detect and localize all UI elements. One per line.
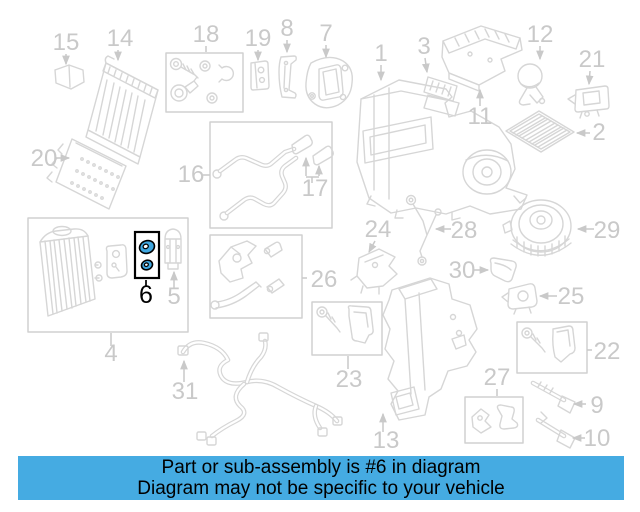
part-callout-23: 23	[336, 356, 363, 393]
part-callout-18: 18	[193, 21, 220, 52]
part-2-cabin-filter-art	[506, 111, 574, 152]
part-callout-29: 29	[578, 217, 620, 244]
part-25-actuator-art	[502, 284, 537, 314]
part-callout-11: 11	[468, 90, 493, 130]
part-number-22: 22	[594, 338, 621, 365]
part-12-bracket-art	[518, 64, 545, 105]
part-number-9: 9	[590, 392, 603, 419]
part-26-actuator-kit-art	[210, 235, 302, 318]
part-number-13: 13	[373, 427, 400, 454]
part-number-7: 7	[319, 20, 332, 47]
part-number-24: 24	[365, 216, 392, 243]
part-27-clip-kit-art	[465, 397, 523, 443]
diagram-banner: Part or sub-assembly is #6 in diagram Di…	[18, 456, 624, 500]
part-1-hvac-case-art	[357, 80, 527, 220]
part-callout-10: 10	[573, 425, 610, 452]
part-6-highlighted-seals	[135, 232, 159, 278]
part-number-28: 28	[451, 217, 478, 244]
part-callout-27: 27	[484, 364, 511, 396]
part-number-30: 30	[449, 257, 476, 284]
part-callout-30: 30	[449, 257, 488, 284]
part-10-rod-art	[538, 412, 575, 448]
diagram-canvas: 1234567891011121314151617181920212223242…	[0, 0, 640, 512]
part-callout-14: 14	[107, 25, 134, 60]
part-9-rod-art	[533, 382, 575, 413]
highlight-box	[135, 232, 159, 278]
part-number-1: 1	[374, 40, 387, 67]
part-number-5: 5	[167, 283, 180, 310]
part-number-15: 15	[53, 29, 80, 56]
part-number-14: 14	[107, 25, 134, 52]
part-callout-4: 4	[104, 333, 117, 367]
part-callout-12: 12	[527, 21, 554, 59]
part-number-29: 29	[594, 217, 621, 244]
part-callout-22: 22	[587, 338, 620, 365]
part-number-8: 8	[280, 15, 293, 42]
part-callout-31: 31	[172, 361, 199, 405]
part-23-door-kit-art	[312, 302, 382, 355]
part-number-4: 4	[104, 340, 117, 367]
part-4-evaporator-assembly-art	[28, 218, 188, 332]
part-callout-9: 9	[574, 392, 604, 419]
part-number-12: 12	[527, 21, 554, 48]
part-7-flange-art	[306, 57, 352, 107]
part-callout-6: 6	[139, 280, 153, 309]
part-number-26: 26	[311, 266, 338, 293]
part-number-3: 3	[417, 33, 430, 60]
parts-diagram-image: 1234567891011121314151617181920212223242…	[0, 0, 640, 512]
part-callout-25: 25	[540, 283, 584, 310]
part-number-10: 10	[584, 425, 611, 452]
part-8-bracket-art	[279, 56, 296, 98]
part-number-23: 23	[336, 366, 363, 393]
part-callout-26: 26	[302, 266, 337, 293]
part-callout-24: 24	[365, 216, 392, 252]
part-number-27: 27	[484, 364, 511, 391]
part-number-11: 11	[468, 103, 493, 130]
part-19-bracket-art	[251, 61, 269, 90]
part-number-18: 18	[193, 21, 220, 48]
part-callout-21: 21	[579, 46, 606, 84]
part-24-bracket-art	[351, 249, 397, 294]
part-callout-1: 1	[374, 40, 387, 80]
part-callout-28: 28	[436, 217, 477, 244]
part-21-actuator-art	[568, 86, 609, 118]
part-callout-13: 13	[373, 414, 400, 454]
part-callout-2: 2	[577, 119, 606, 146]
part-22-door-kit-art	[517, 322, 587, 373]
part-28-link-rod-art	[407, 196, 442, 266]
part-number-2: 2	[592, 119, 605, 146]
part-number-16: 16	[178, 161, 205, 188]
part-callout-15: 15	[53, 29, 80, 64]
part-callout-7: 7	[319, 20, 332, 57]
part-number-25: 25	[558, 283, 585, 310]
part-number-20: 20	[31, 145, 58, 172]
part-30-clip-art	[490, 258, 516, 282]
part-number-17: 17	[302, 175, 329, 202]
part-callout-20: 20	[31, 145, 69, 172]
part-callout-19: 19	[245, 25, 272, 60]
part-number-21: 21	[579, 46, 606, 73]
part-callout-3: 3	[417, 33, 430, 72]
part-14-heater-core-art	[86, 56, 158, 164]
oring-small-hole	[144, 262, 149, 267]
part-number-19: 19	[245, 25, 272, 52]
part-callout-16: 16	[178, 161, 210, 188]
part-11-cowl-duct-art	[442, 26, 522, 91]
banner-line-1: Part or sub-assembly is #6 in diagram	[162, 457, 481, 478]
part-20-plate-art	[47, 139, 126, 209]
part-15-bracket-art	[55, 65, 84, 89]
part-18-service-kit-art	[166, 53, 243, 112]
banner-line-2: Diagram may not be specific to your vehi…	[137, 478, 505, 499]
part-29-blower-motor-art	[503, 200, 571, 256]
part-number-6: 6	[139, 281, 153, 309]
part-13-lower-housing-art	[383, 278, 477, 420]
part-number-31: 31	[172, 378, 199, 405]
part-callout-8: 8	[280, 15, 293, 52]
